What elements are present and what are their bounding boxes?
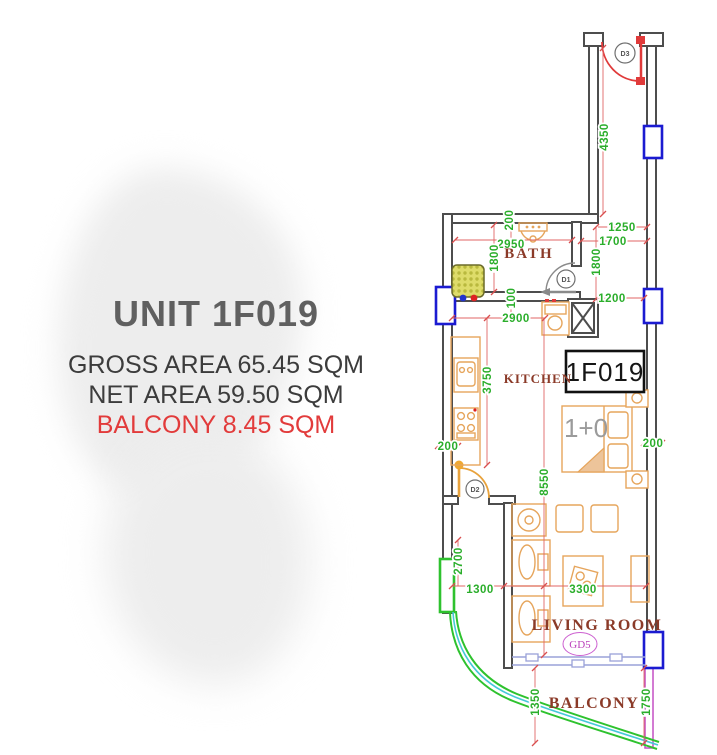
hot-water-valve	[471, 295, 478, 302]
unit-title: UNIT 1F019	[14, 293, 418, 335]
gross-area-text: GROSS AREA 65.45 SQM	[14, 350, 418, 380]
dim-wall-gap: 100	[506, 288, 518, 309]
living-room-label: LIVING ROOM	[532, 617, 663, 634]
balcony-area-text: BALCONY 8.45 SQM	[14, 410, 418, 440]
kitchen-door-d2: D2	[455, 461, 490, 499]
balcony-label: BALCONY	[549, 695, 640, 712]
unit-number-box: 1F019	[566, 351, 645, 392]
pouf	[591, 505, 618, 532]
bath-door-d1: D1	[540, 263, 576, 296]
dim-balcony-side: 1750	[641, 688, 653, 716]
coffee-table	[563, 556, 603, 606]
floorplan-page: UNIT 1F019 GROSS AREA 65.45 SQM NET AREA…	[0, 0, 717, 755]
cold-water-valve	[460, 295, 467, 302]
bed-type-label: 1+0	[564, 413, 608, 443]
bath-label: BATH	[504, 246, 553, 262]
entry-wall-cap-left	[584, 33, 603, 46]
net-area-text: NET AREA 59.50 SQM	[14, 380, 418, 410]
dim-bath-left: 1800	[489, 244, 501, 272]
dim-bath-offset: 200	[504, 210, 516, 231]
dim-kitchen-height: 3750	[482, 366, 494, 394]
unit-number-label: 1F019	[566, 357, 645, 387]
window-right-mid	[644, 289, 662, 323]
corridor-left-wall	[589, 46, 598, 222]
dim-living-width: 3300	[569, 584, 597, 596]
shower-tray	[452, 265, 484, 301]
dim-nook-height: 2700	[453, 547, 465, 575]
dim-corridor: 4350	[599, 123, 611, 151]
d1-label: D1	[562, 277, 571, 284]
unit-info-panel: UNIT 1F019 GROSS AREA 65.45 SQM NET AREA…	[14, 293, 418, 440]
pillow	[608, 444, 628, 468]
dim-nook-width: 1300	[466, 584, 494, 596]
window-right-lower	[644, 632, 663, 668]
dim-entry-b: 1700	[599, 236, 627, 248]
kitchen-label: KITCHEN	[504, 371, 572, 386]
dim-kitchen-width: 2900	[502, 313, 530, 325]
dim-main-height: 8550	[539, 468, 551, 496]
window-corridor	[644, 126, 662, 158]
dim-entry-c: 1200	[598, 293, 626, 305]
dim-bath-right: 1800	[591, 248, 603, 276]
dim-right-offset: 200	[643, 438, 664, 450]
dim-entry-a: 1250	[608, 222, 636, 234]
d3-label: D3	[621, 51, 630, 58]
bath-right-wall	[572, 222, 581, 266]
entrance-door-d3: D3	[602, 36, 645, 85]
service-shaft	[568, 299, 598, 337]
d2-wall-stub-left	[443, 496, 458, 504]
pouf	[556, 505, 583, 532]
pillow	[608, 412, 628, 438]
d2-label: D2	[471, 487, 480, 494]
glass-door-tag: GD5	[563, 633, 597, 656]
glass-door-label: GD5	[569, 639, 591, 651]
bed: 1+0	[562, 390, 648, 488]
dim-balcony-depth: 1350	[530, 688, 542, 716]
dim-left-offset: 200	[438, 441, 459, 453]
